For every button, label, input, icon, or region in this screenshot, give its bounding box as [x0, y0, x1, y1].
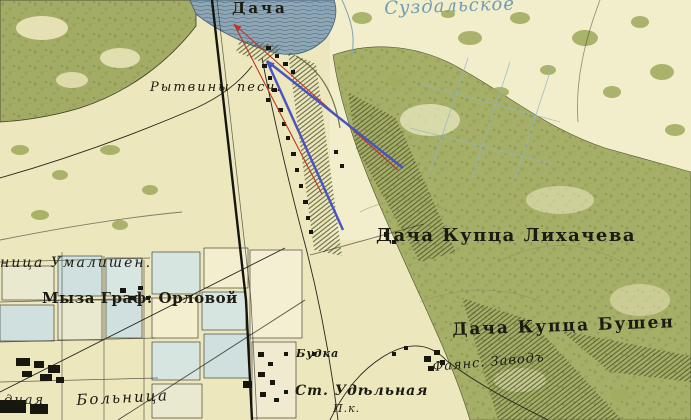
label-dnaya-fragment: дная [4, 394, 45, 407]
label-myza-graf-orlovoy: Мыза Граф: Орловой [42, 291, 238, 306]
label-budka: Будка [296, 348, 339, 359]
label-dacha-kuptsa-likhacheva: Дача Купца Лихачева [376, 227, 636, 245]
label-dacha: Дача [232, 1, 288, 16]
station-building [243, 381, 252, 388]
label-zav-fragment: Зав. [306, 2, 338, 15]
label-pk: П.к. [333, 403, 360, 414]
label-st-udelnaya: Ст. Удѣльная [295, 384, 428, 398]
map-artwork [0, 0, 691, 420]
label-bolnitsa-umalishennykh-fragment: ница Умалишен. [0, 256, 152, 270]
label-rytviny-pesch: Рытвины песч. [150, 81, 282, 94]
historical-map: Дача Зав. Суздальское Рытвины песч. Дача… [0, 0, 691, 420]
